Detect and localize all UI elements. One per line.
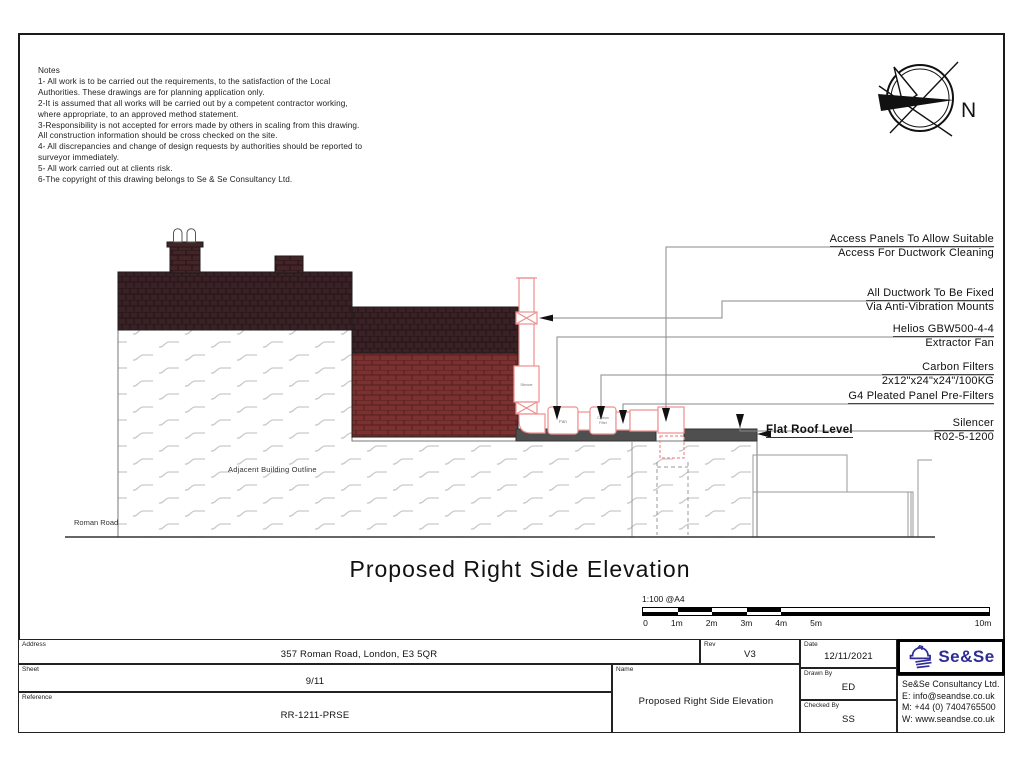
left-roof-tiles [118,272,352,330]
chimney-cap [167,242,203,247]
sheet-value: 9/11 [19,665,611,691]
carbon-filter-tag-line2: Filter [599,421,608,425]
scale-tick: 3m [740,618,752,628]
address-value: 357 Roman Road, London, E3 5QR [19,640,699,663]
company-phone: M: +44 (0) 7404765500 [902,702,1000,714]
right-roof-tiles [352,307,518,353]
logo-text: Se&Se [938,647,994,667]
annotation-line: Extractor Fan [893,337,994,350]
scale-label: 1:100 @A4 [642,594,990,604]
sheet-cell: Sheet 9/11 [18,664,612,692]
company-email: E: info@seandse.co.uk [902,691,1000,703]
company-logo: Se&Se [897,639,1005,675]
name-value: Proposed Right Side Elevation [613,665,799,732]
annotation-access-panels: Access Panels To Allow Suitable Access F… [830,233,994,260]
drawn-by-value: ED [801,669,896,699]
adjacent-building-label: Adjacent Building Outline [228,465,317,474]
annotation-line: G4 Pleated Panel Pre-Filters [848,390,994,404]
chimney-pot [174,229,183,242]
annotation-line: 2x12"x24"x24"/100KG [882,375,994,388]
date-value: 12/11/2021 [801,640,896,667]
chimney-stack-left [170,246,200,273]
annotation-line: R02-5-1200 [934,431,994,444]
annotation-silencer: Silencer R02-5-1200 [934,417,994,444]
anti-vibration-mount [516,312,537,324]
company-website: W: www.seandse.co.uk [902,714,1000,726]
hard-hat-icon [907,644,935,670]
annotation-line: Helios GBW500-4-4 [893,323,994,337]
scale-bar: 1:100 @A4 0 1m 2m 3m 4m 5m 10m [642,594,990,630]
duct-section [578,412,590,430]
reference-value: RR-1211-PRSE [19,693,611,732]
scale-tick: 5m [810,618,822,628]
chimney-pot [187,229,196,242]
duct-elbow [519,414,545,433]
address-cell: Address 357 Roman Road, London, E3 5QR [18,639,700,664]
name-cell: Name Proposed Right Side Elevation [612,664,800,733]
annotation-line: Via Anti-Vibration Mounts [866,301,994,314]
annotation-line: Silencer [934,417,994,431]
compass-north-label: N [961,99,976,122]
title-block: Address 357 Roman Road, London, E3 5QR R… [18,639,1005,733]
annotation-line: All Ductwork To Be Fixed [866,287,994,301]
drawing-title: Proposed Right Side Elevation [350,556,691,583]
rev-value: V3 [701,640,799,663]
carbon-filter-tag-line1: Carbon [597,416,609,420]
chimney-stack-right [275,256,303,273]
fan-tag: Fan [559,419,567,424]
anti-vibration-mount [516,402,537,414]
compass-blade-black [878,94,954,111]
annotation-line: Access Panels To Allow Suitable [830,233,994,247]
annotation-g4-prefilters: G4 Pleated Panel Pre-Filters [848,390,994,404]
checked-by-value: SS [801,701,896,732]
drawn-by-cell: Drawn By ED [800,668,897,700]
company-name: Se&Se Consultancy Ltd. [902,679,1000,691]
leader-arrow [736,414,744,428]
annotation-anti-vibration: All Ductwork To Be Fixed Via Anti-Vibrat… [866,287,994,314]
annotation-line: Access For Ductwork Cleaning [830,247,994,260]
reference-cell: Reference RR-1211-PRSE [18,692,612,733]
rev-cell: Rev V3 [700,639,800,664]
duct-section [630,410,658,431]
leader-arrow [539,315,553,322]
scale-tick: 10m [975,618,992,628]
checked-by-cell: Checked By SS [800,700,897,733]
scale-tick: 4m [775,618,787,628]
date-cell: Date 12/11/2021 [800,639,897,668]
annotation-extractor-fan: Helios GBW500-4-4 Extractor Fan [893,323,994,350]
scale-tick: 2m [706,618,718,628]
scale-tick: 0 [643,618,648,628]
access-panel-section [658,407,684,433]
scale-tick-labels: 0 1m 2m 3m 4m 5m 10m [642,618,990,630]
road-label: Roman Road [74,518,118,527]
annotation-line: Carbon Filters [882,361,994,375]
scale-tick: 1m [671,618,683,628]
flat-roof-level-label: Flat Roof Level [766,424,853,438]
extract-ductwork [514,278,684,458]
scale-bar-graphic [642,607,990,616]
drawing-sheet: Notes 1- All work is to be carried out t… [0,0,1024,768]
right-brick-wall [352,353,518,437]
north-compass: N [878,62,976,136]
company-info: Se&Se Consultancy Ltd. E: info@seandse.c… [897,675,1005,733]
annotation-carbon-filters: Carbon Filters 2x12"x24"x24"/100KG [882,361,994,388]
silencer-tag: Silencer [520,383,533,387]
adjacent-outline-structures [753,455,932,537]
